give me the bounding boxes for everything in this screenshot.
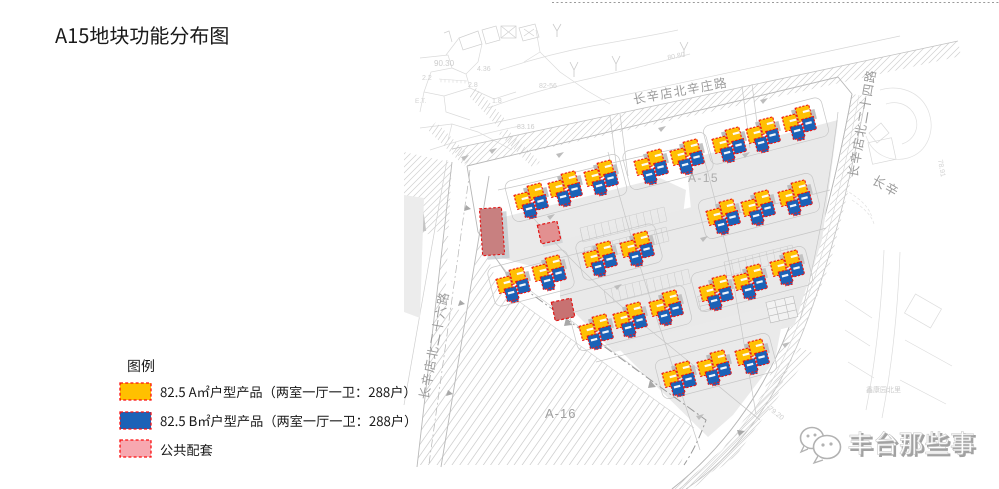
svg-text:82-56: 82-56 <box>539 83 557 90</box>
svg-text:4.36: 4.36 <box>477 66 491 73</box>
svg-text:90.30: 90.30 <box>434 59 455 68</box>
svg-text:鑫康园北里: 鑫康园北里 <box>866 385 901 394</box>
svg-text:A-16: A-16 <box>545 406 576 421</box>
svg-text:2.2: 2.2 <box>422 75 432 82</box>
svg-text:E.T.: E.T. <box>415 98 426 105</box>
svg-text:1.8: 1.8 <box>492 98 502 105</box>
svg-text:83.16: 83.16 <box>517 124 535 131</box>
svg-text:A-15: A-15 <box>688 171 719 185</box>
svg-text:2.8: 2.8 <box>468 82 478 89</box>
